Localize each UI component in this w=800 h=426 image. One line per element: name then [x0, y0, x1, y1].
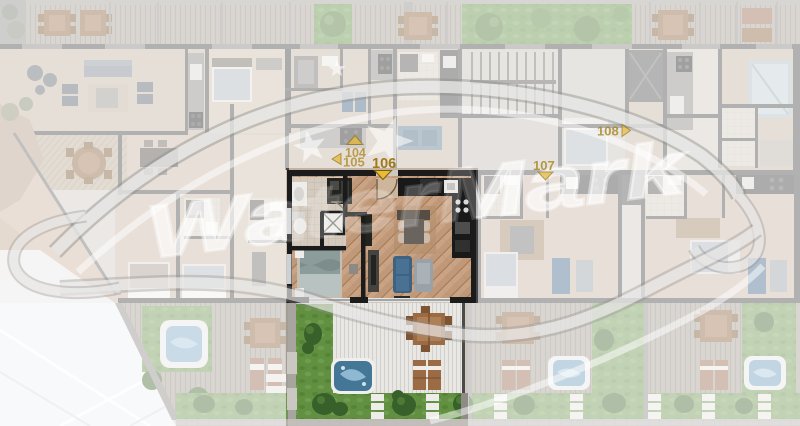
svg-text:108: 108: [597, 124, 619, 139]
svg-text:107: 107: [533, 158, 555, 173]
svg-text:105: 105: [343, 155, 365, 170]
svg-text:106: 106: [372, 156, 396, 172]
